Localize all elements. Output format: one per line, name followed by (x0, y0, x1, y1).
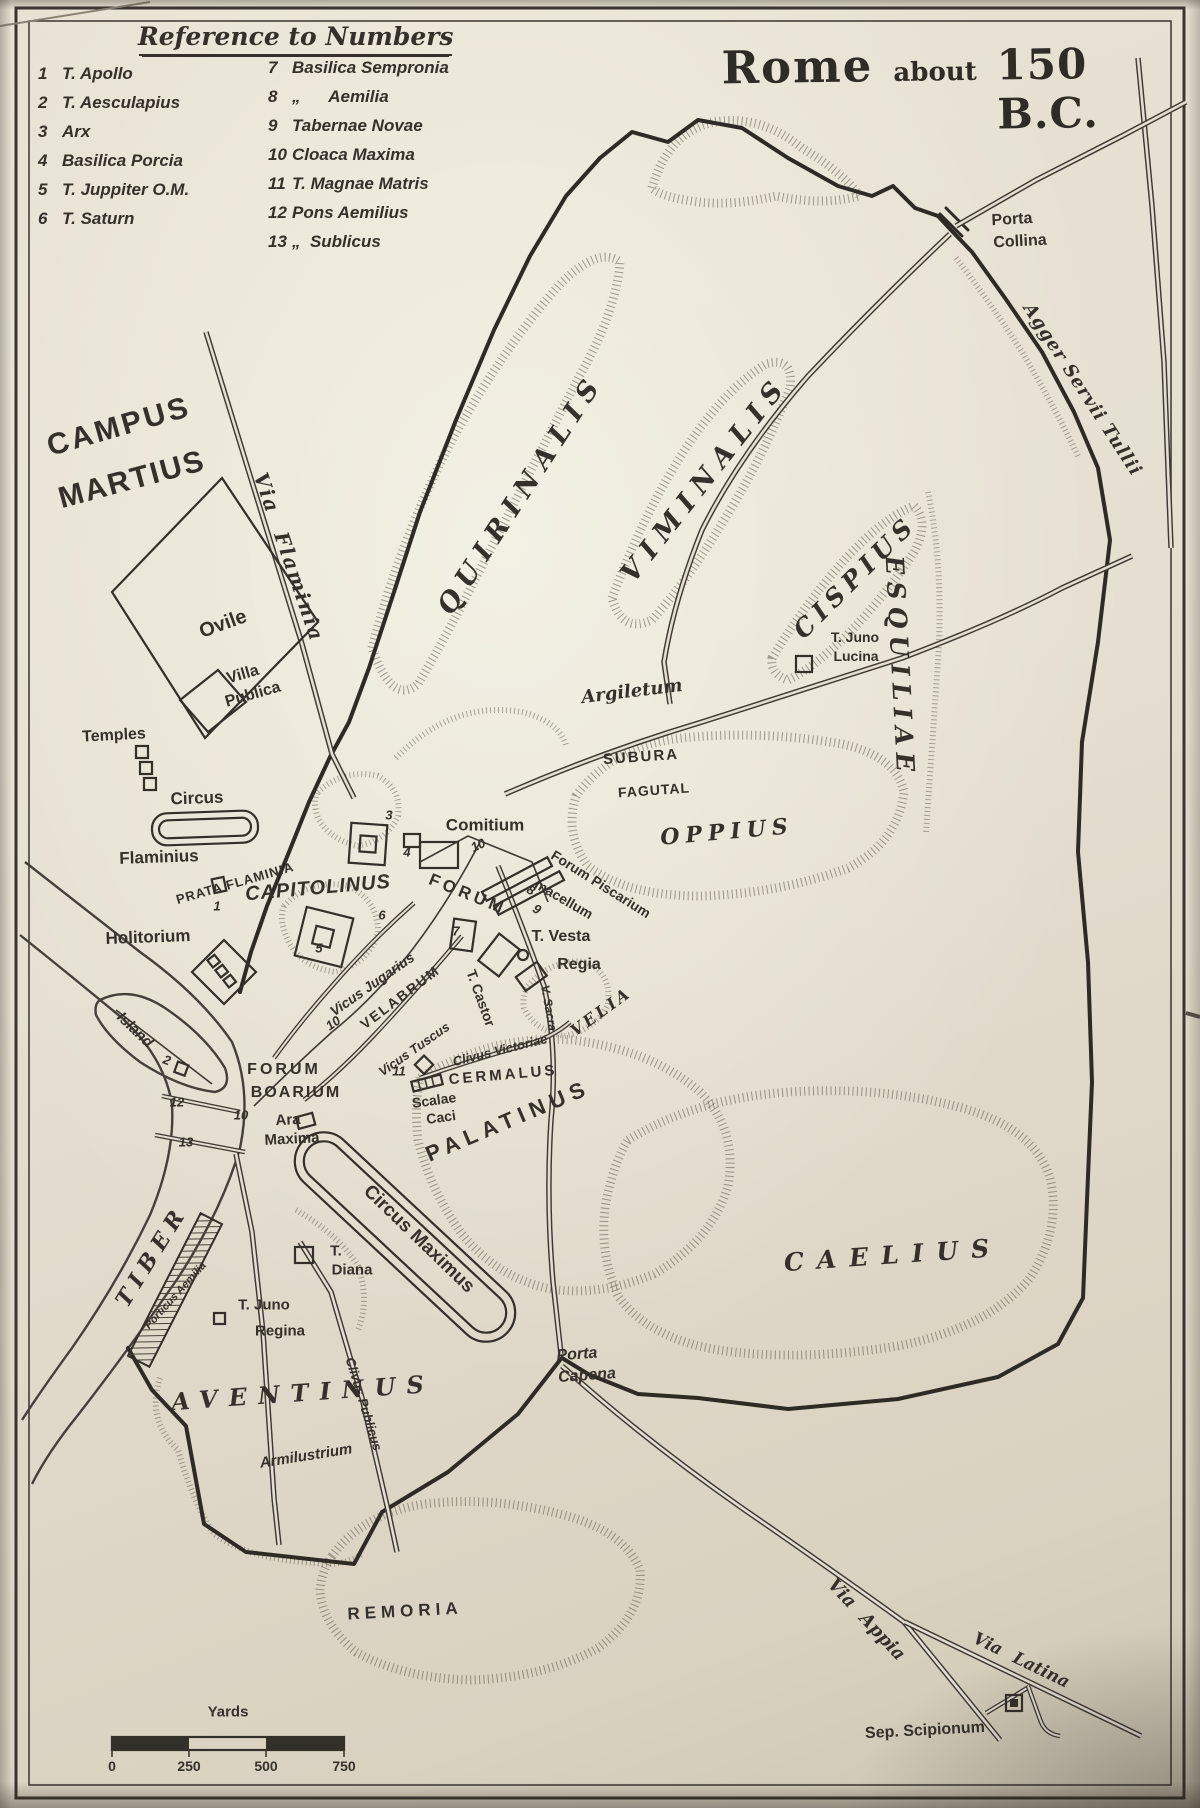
clivus-publicus: Clivus Publicus (344, 1356, 385, 1452)
argiletum: Argiletum (580, 677, 683, 707)
porta-capena-line2: Capena (558, 1366, 617, 1386)
caelius: CAELIUS (783, 1235, 1003, 1275)
holitorium: Holitorium (105, 927, 191, 947)
num-5: 5 (315, 942, 322, 955)
forum-boarium-line2: BOARIUM (251, 1085, 341, 1101)
circus-maximus: Circus Maximus (360, 1182, 478, 1297)
t-juno-lucina-line2: Lucina (833, 649, 878, 663)
forum: FORUM (427, 871, 510, 918)
scale-tick-500: 500 (254, 1758, 277, 1774)
island: Island (114, 1010, 156, 1051)
ara-maxima-line2: Maxima (264, 1130, 320, 1148)
num-11: 11 (392, 1065, 406, 1078)
ara-maxima-line1: Ara (275, 1112, 301, 1128)
esquiliae: ESQUILIAE (882, 555, 919, 779)
castor: T. Castor (464, 968, 497, 1028)
num-7: 7 (452, 925, 459, 938)
num-10-velabrum: 10 (323, 1014, 342, 1033)
num-3: 3 (385, 809, 392, 822)
forum-piscarium: Forum Piscarium (549, 848, 653, 920)
scale-tick-0: 0 (108, 1758, 116, 1774)
sep-scipionum: Sep. Scipionum (865, 1720, 986, 1742)
aventinus: AVENTINUS (170, 1372, 435, 1414)
num-6: 6 (378, 909, 385, 922)
quirinalis: QUIRINALIS (433, 369, 609, 620)
agger-servii-tullii: Agger Servii Tullii (1019, 300, 1144, 479)
velia: VELIA (568, 985, 635, 1040)
circus-flaminius-line2: Flaminius (119, 847, 199, 867)
villa-publica-line1: Villa (225, 663, 261, 687)
t-diana-line1: T. (330, 1244, 342, 1259)
num-10-forum: 10 (469, 836, 488, 854)
scale-tick-250: 250 (177, 1758, 200, 1774)
ovile: Ovile (197, 606, 250, 642)
map-label-layer: CAMPUSMARTIUSVia FlaminiaOvileVillaPubli… (0, 0, 1200, 1808)
subura: SUBURA (602, 747, 679, 767)
vicus-tuscus: Vicus Tuscus (376, 1020, 452, 1078)
remoria: REMORIA (347, 1599, 463, 1622)
forum-boarium-line1: FORUM (247, 1062, 321, 1078)
clivus-victoriae: Clivus Victoriae (451, 1032, 548, 1068)
porta-collina-line2: Collina (993, 233, 1047, 252)
via-flaminia: Via Flaminia (251, 470, 328, 644)
t-juno-regina-line1: T. Juno (238, 1298, 290, 1313)
via-sacra: V. Sacra (539, 984, 559, 1032)
t-juno-regina-line2: Regina (255, 1324, 305, 1339)
num-1: 1 (213, 900, 220, 913)
num-9: 9 (531, 902, 544, 917)
t-juno-lucina-line1: T. Juno (831, 630, 879, 644)
num-12: 12 (170, 1096, 184, 1109)
num-13: 13 (179, 1136, 193, 1149)
scale-unit-label: Yards (208, 1704, 249, 1721)
scale-tick-750: 750 (332, 1758, 355, 1774)
via-latina: Via Latina (970, 1630, 1072, 1691)
via-appia: Via Appia (824, 1576, 908, 1664)
scalae-caci-line2: Caci (425, 1108, 456, 1126)
regia: Regia (557, 957, 601, 973)
scanned-map-page: Reference to Numbers 1T. Apollo2T. Aescu… (0, 0, 1200, 1808)
armilustrium: Armilustrium (259, 1441, 354, 1470)
num-2: 2 (161, 1053, 172, 1068)
num-4: 4 (403, 846, 410, 859)
circus-flaminius-line1: Circus (170, 789, 223, 808)
vesta: T. Vesta (532, 929, 591, 945)
viminalis: VIMINALIS (616, 371, 794, 588)
t-diana-line2: Diana (332, 1263, 373, 1278)
num-10-river: 10 (234, 1109, 248, 1122)
porta-capena-line1: Porta (556, 1346, 598, 1365)
temples: Temples (82, 726, 146, 745)
oppius: OPPIUS (659, 815, 794, 849)
porta-collina-line1: Porta (991, 211, 1033, 229)
fagutal: FAGUTAL (618, 781, 691, 800)
comitium: Comitium (446, 817, 524, 834)
campus-martius-line2: MARTIUS (55, 446, 208, 514)
